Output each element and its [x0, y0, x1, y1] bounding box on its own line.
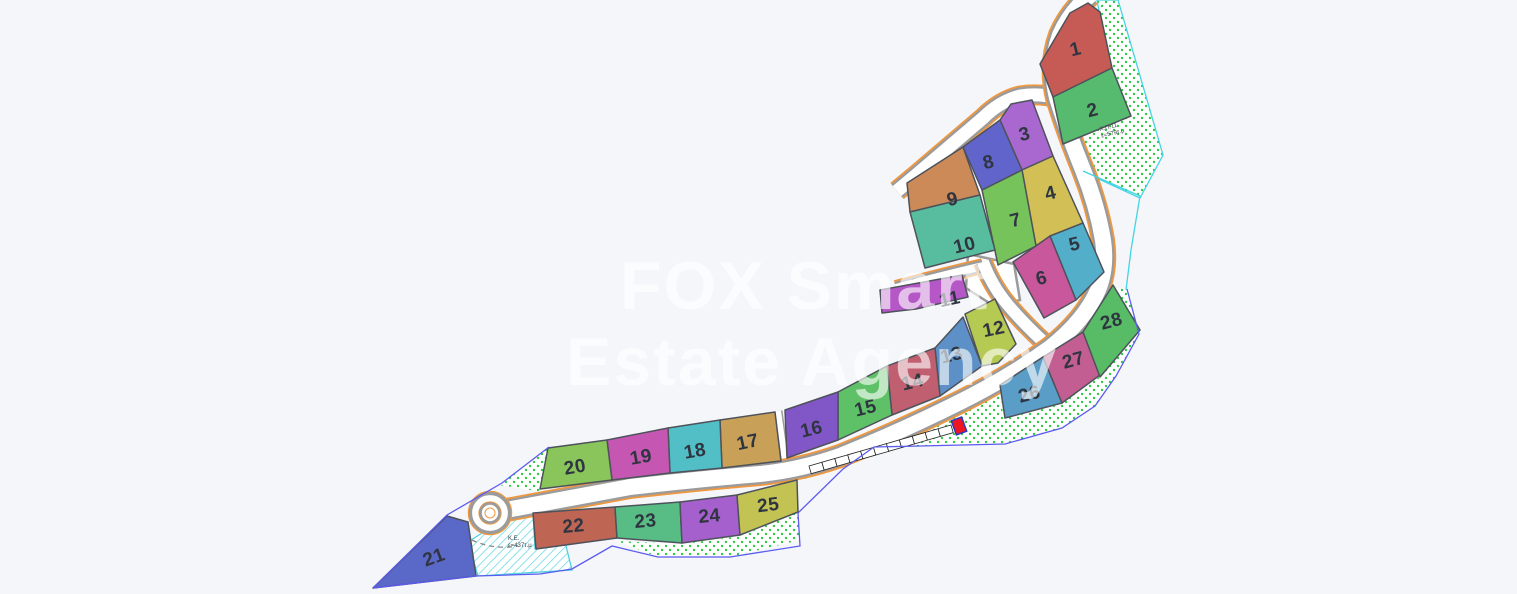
plot-24-label: 24 [698, 505, 722, 528]
plot-20-label: 20 [562, 455, 587, 480]
site-plan-map: 1234567891011121314151617181920212223242… [0, 0, 1517, 594]
plot-22-label: 22 [562, 515, 586, 538]
plot-23-label: 23 [634, 510, 658, 533]
plot-18-label: 18 [682, 439, 707, 464]
plot-19-label: 19 [628, 445, 653, 470]
site-plan-svg: 1234567891011121314151617181920212223242… [0, 0, 1517, 594]
plot-25-label: 25 [756, 494, 781, 518]
plot-11-label: 11 [937, 287, 962, 312]
